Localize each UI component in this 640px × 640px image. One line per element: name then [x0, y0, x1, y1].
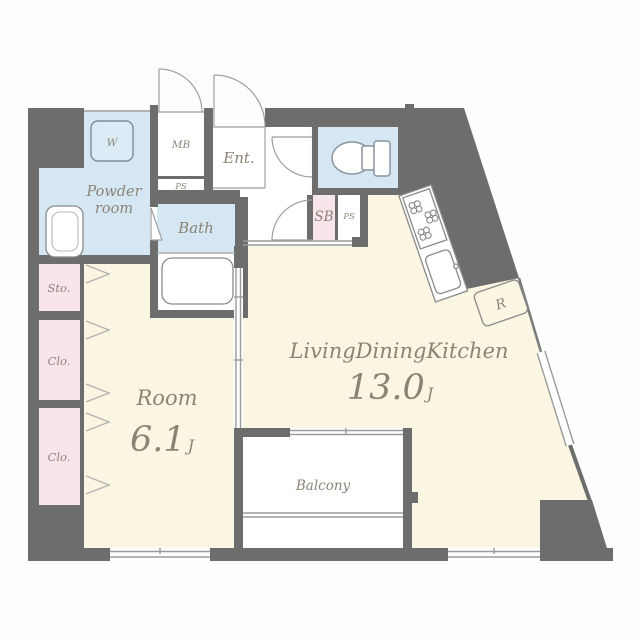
toilet-icon: [332, 141, 390, 176]
ldk-name-label: LivingDiningKitchen: [288, 339, 508, 363]
hall-floor: [240, 190, 307, 242]
pipe-space-right-label: PS: [342, 212, 355, 222]
wall-powder-bath: [150, 240, 158, 264]
mb-door-arc: [159, 69, 202, 112]
entrance-door-arc: [214, 75, 265, 126]
powder-room-label-line2: room: [95, 201, 133, 217]
wall-balcony-top: [243, 428, 290, 437]
shoe-box-label: SB: [314, 209, 333, 225]
ldk-size-label: 13.0J: [347, 368, 435, 408]
wall-sb-ps: [335, 195, 338, 240]
wall-toilet-left: [312, 127, 318, 188]
wall-corner-chunk: [540, 500, 611, 561]
floor-plan: R W MB PS Ent. Powder room Bath SB PS St…: [0, 0, 640, 640]
wall-top-left-block: [28, 108, 84, 168]
balcony-label: Balcony: [295, 478, 351, 494]
ldk-size-value: 13.0: [347, 368, 425, 408]
meter-box-label: MB: [171, 139, 191, 151]
wall-left: [28, 108, 39, 552]
entrance-label: Ent.: [222, 149, 254, 167]
kitchen-faucet-dot: [453, 263, 459, 269]
washbasin-icon: [46, 206, 83, 257]
bath-label: Bath: [177, 219, 214, 237]
bathtub-icon: [162, 258, 233, 304]
closet-upper-label: Clo.: [48, 354, 71, 368]
wall-powder-bottom: [28, 255, 158, 264]
washer-label: W: [107, 137, 119, 149]
wall-mb-ps: [151, 176, 204, 179]
wall-sb-left: [307, 195, 313, 240]
wall-closet-sep1: [28, 311, 84, 320]
closet-lower-label: Clo.: [48, 450, 71, 464]
wall-balcony-right: [403, 428, 412, 548]
wall-top-notch: [405, 104, 414, 113]
room-name-label: Room: [135, 386, 197, 410]
pipe-space-top-label: PS: [174, 182, 187, 192]
room-size-value: 6.1: [130, 420, 186, 460]
wall-closet-sep2: [28, 400, 84, 408]
storage-label: Sto.: [48, 281, 71, 295]
wall-balcony-step: [403, 492, 418, 503]
wall-mb-ent: [204, 108, 213, 198]
wall-ps-bottom-stub: [352, 237, 368, 247]
wall-bath-top: [151, 190, 240, 204]
wall-toilet-bottom: [312, 188, 404, 195]
wall-ps-right: [360, 188, 368, 245]
powder-room-label-line1: Powder: [85, 184, 142, 200]
wall-closet-right: [80, 263, 84, 505]
wall-bottom-left-block: [28, 505, 84, 552]
wall-tub-bottom: [150, 310, 248, 318]
wall-tub-left: [150, 264, 158, 318]
floor-plan-canvas: R W MB PS Ent. Powder room Bath SB PS St…: [0, 0, 640, 640]
